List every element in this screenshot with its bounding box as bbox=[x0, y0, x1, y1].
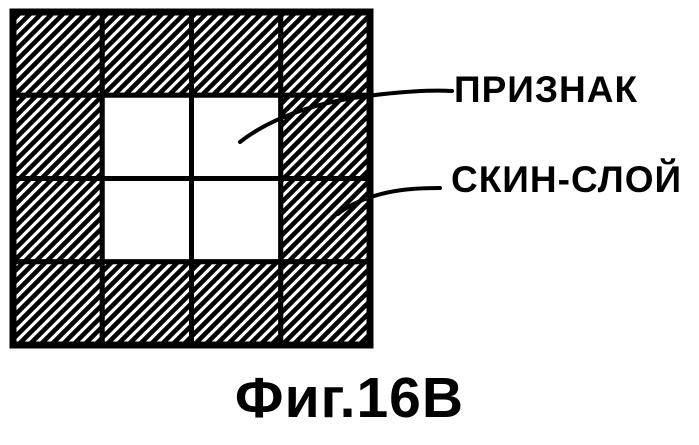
grid-cell-hatched bbox=[13, 95, 102, 178]
grid-cell-white bbox=[102, 95, 191, 178]
grid-cell-hatched bbox=[192, 12, 281, 95]
grid-cell-white bbox=[102, 179, 191, 262]
label-feature: ПРИЗНАК bbox=[454, 71, 638, 108]
grid-cell-hatched bbox=[281, 179, 370, 262]
grid-cell-hatched bbox=[102, 12, 191, 95]
grid-cell-hatched bbox=[281, 95, 370, 178]
label-skin-layer: СКИН-СЛОЙ bbox=[451, 161, 682, 198]
grid-cell-white bbox=[192, 179, 281, 262]
grid-cell-hatched bbox=[13, 12, 102, 95]
grid-cells bbox=[13, 12, 370, 345]
grid-cell-hatched bbox=[281, 262, 370, 345]
grid-cell-white bbox=[192, 95, 281, 178]
grid-cell-hatched bbox=[102, 262, 191, 345]
grid-cell-hatched bbox=[13, 262, 102, 345]
grid-cell-hatched bbox=[192, 262, 281, 345]
grid-cell-hatched bbox=[13, 179, 102, 262]
figure-caption: Фиг.16В bbox=[0, 367, 699, 430]
patent-figure: ПРИЗНАК СКИН-СЛОЙ Фиг.16В bbox=[0, 0, 699, 445]
grid-cell-hatched bbox=[281, 12, 370, 95]
